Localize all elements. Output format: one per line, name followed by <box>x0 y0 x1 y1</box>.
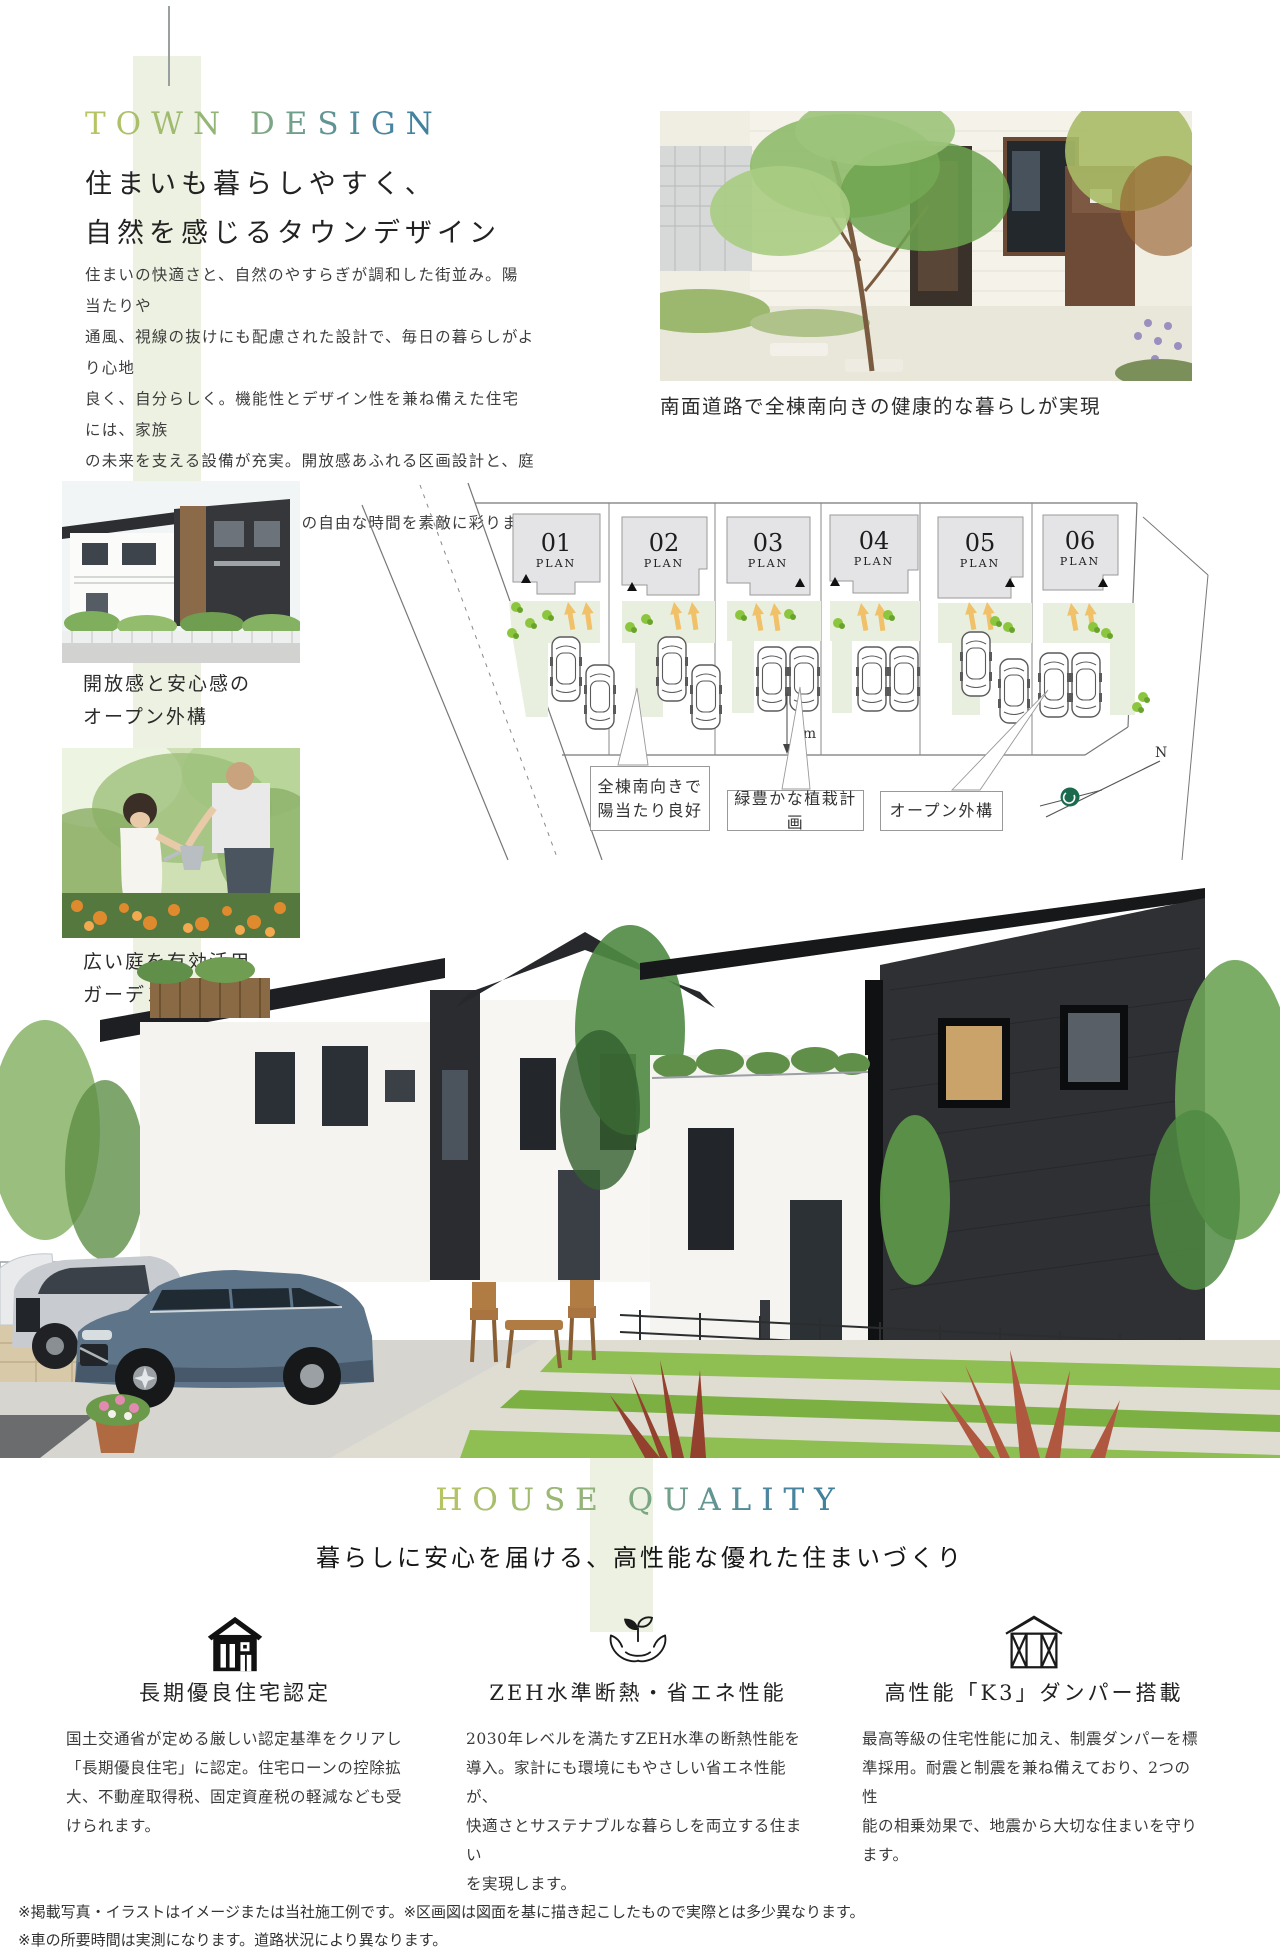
callout-open-exterior: オープン外構 <box>880 791 1003 831</box>
plot-number: 01 <box>541 529 572 557</box>
caption-line: オープン外構 <box>83 701 251 734</box>
top-tick-line <box>168 6 170 86</box>
town-design-title-line2: 自然を感じるタウンデザイン <box>85 209 501 258</box>
north-compass-icon: N <box>1040 745 1167 817</box>
feature-body-line: 最高等級の住宅性能に加え、制震ダンパーを標 <box>862 1725 1206 1754</box>
feature-long-term-housing: 長期優良住宅認定 国土交通省が定める厳しい認定基準をクリアし 「長期優良住宅」に… <box>66 1615 404 1841</box>
body-line: 通風、視線の抜けにも配慮された設計で、毎日の暮らしがより心地 <box>85 322 535 384</box>
feature-body-line: 2030年レベルを満たすZEH水準の断熱性能を <box>466 1725 810 1754</box>
feature-title: ZEH水準断熱・省エネ性能 <box>466 1677 810 1707</box>
caption-line: 開放感と安心感の <box>83 668 251 701</box>
open-exterior-photo <box>62 481 300 663</box>
feature-zeh-insulation: ZEH水準断熱・省エネ性能 2030年レベルを満たすZEH水準の断熱性能を 導入… <box>466 1615 810 1899</box>
feature-title: 高性能「K3」ダンパー搭載 <box>862 1677 1206 1707</box>
feature-body-line: 能の相乗効果で、地震から大切な住まいを守り <box>862 1812 1206 1841</box>
callout-south-facing: 全棟南向きで 陽当たり良好 <box>590 766 710 831</box>
plot-plan-label: PLAN <box>854 555 894 568</box>
feature-k3-damper: 高性能「K3」ダンパー搭載 最高等級の住宅性能に加え、制震ダンパーを標 準採用。… <box>862 1615 1206 1870</box>
body-line: 住まいの快適さと、自然のやすらぎが調和した街並み。陽当たりや <box>85 260 535 322</box>
plot-plan-label: PLAN <box>960 557 1000 570</box>
house-quality-label: HOUSE QUALITY <box>0 1482 1280 1518</box>
callout-line: 陽当たり良好 <box>597 799 702 823</box>
town-design-title-line1: 住まいも暮らしやすく、 <box>85 160 501 209</box>
plot-number: 02 <box>649 529 680 557</box>
plot-number: 03 <box>753 529 784 557</box>
body-line: 良く、自分らしく。機能性とデザイン性を兼ね備えた住宅には、家族 <box>85 384 535 446</box>
open-exterior-caption: 開放感と安心感の オープン外構 <box>83 668 251 734</box>
plot-plan-label: PLAN <box>536 557 576 570</box>
braced-frame-icon <box>862 1615 1206 1677</box>
plot-number: 05 <box>965 529 996 557</box>
plot-number: 04 <box>859 527 890 555</box>
open-exterior-photo-art <box>62 481 300 663</box>
footer-line1: ※掲載写真・イラストはイメージまたは当社施工例です。※区画図は図面を基に描き起こ… <box>18 1898 1258 1926</box>
callout-line: 全棟南向きで <box>597 775 702 799</box>
north-label: N <box>1155 745 1167 761</box>
plot-plan-label: PLAN <box>644 557 684 570</box>
feature-body-line: けられます。 <box>66 1812 404 1841</box>
feature-body: 国土交通省が定める厳しい認定基準をクリアし 「長期優良住宅」に認定。住宅ローンの… <box>66 1725 404 1841</box>
feature-body: 最高等級の住宅性能に加え、制震ダンパーを標 準採用。耐震と制震を兼ね備えており、… <box>862 1725 1206 1870</box>
feature-body: 2030年レベルを満たすZEH水準の断熱性能を 導入。家計にも環境にもやさしい省… <box>466 1725 810 1899</box>
house-quality-label-text: HOUSE QUALITY <box>435 1482 844 1518</box>
street-render-art <box>0 870 1280 1458</box>
plot-plan-label: PLAN <box>1060 555 1100 568</box>
town-design-label: TOWN DESIGN <box>85 106 443 142</box>
feature-body-line: 国土交通省が定める厳しい認定基準をクリアし <box>66 1725 404 1754</box>
footer-disclaimer: ※掲載写真・イラストはイメージまたは当社施工例です。※区画図は図面を基に描き起こ… <box>18 1898 1258 1954</box>
exterior-photo <box>660 111 1192 381</box>
house-quality-subtitle: 暮らしに安心を届ける、高性能な優れた住まいづくり <box>0 1538 1280 1573</box>
feature-body-line: 準採用。耐震と制震を兼ね備えており、2つの性 <box>862 1754 1206 1812</box>
callout-planting: 緑豊かな植栽計画 <box>727 790 864 831</box>
certified-house-icon <box>66 1615 404 1677</box>
town-design-title: 住まいも暮らしやすく、 自然を感じるタウンデザイン <box>85 160 501 258</box>
exterior-photo-art <box>660 111 1192 381</box>
hands-sprout-icon <box>466 1615 810 1677</box>
feature-body-line: 「長期優良住宅」に認定。住宅ローンの控除拡 <box>66 1754 404 1783</box>
feature-body-line: 快適さとサステナブルな暮らしを両立する住まい <box>466 1812 810 1870</box>
feature-body-line: ます。 <box>862 1841 1206 1870</box>
plot-number: 06 <box>1065 527 1096 555</box>
feature-body-line: を実現します。 <box>466 1870 810 1899</box>
exterior-photo-caption: 南面道路で全棟南向きの健康的な暮らしが実現 <box>660 390 1101 419</box>
footer-line2: ※車の所要時間は実測になります。道路状況により異なります。 <box>18 1926 1258 1954</box>
feature-body-line: 導入。家計にも環境にもやさしい省エネ性能が、 <box>466 1754 810 1812</box>
flyer-page: TOWN DESIGN 住まいも暮らしやすく、 自然を感じるタウンデザイン 住ま… <box>0 0 1280 1960</box>
street-render <box>0 870 1280 1458</box>
feature-title: 長期優良住宅認定 <box>66 1677 404 1707</box>
feature-body-line: 大、不動産取得税、固定資産税の軽減なども受 <box>66 1783 404 1812</box>
plot-plan-label: PLAN <box>748 557 788 570</box>
